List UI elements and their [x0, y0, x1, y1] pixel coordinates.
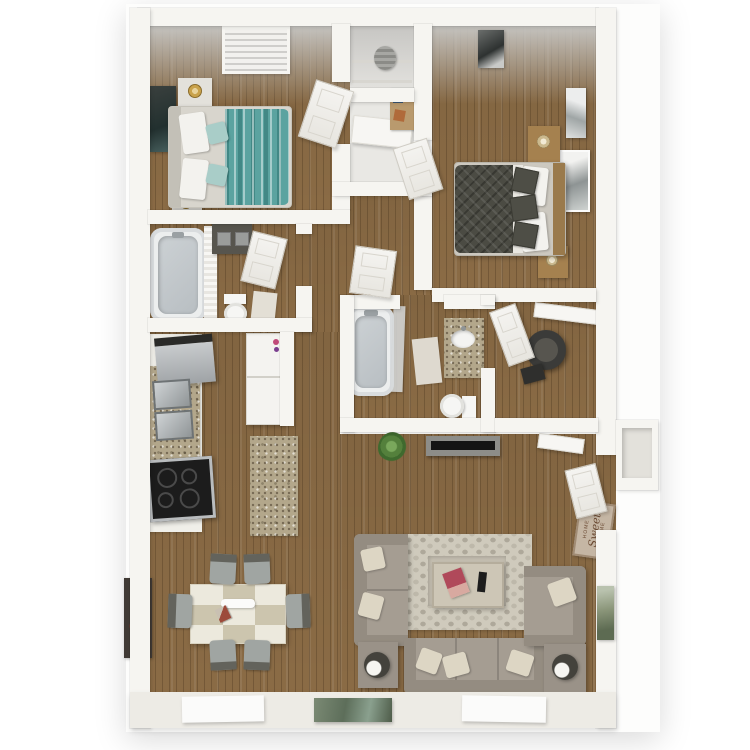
bedroom1-lamp-top [188, 84, 202, 98]
bathroom1-tub [150, 228, 206, 322]
walkin-chair-seat [534, 338, 558, 362]
wall-bedroom1-right-upper [332, 24, 350, 82]
range-burner-4 [179, 488, 200, 509]
bathroom2-tub [348, 306, 394, 396]
bed2-pillow-dark-2 [509, 194, 538, 221]
kitchen-sink-basin-2 [154, 410, 194, 442]
kitchen-sink-basin-1 [152, 379, 192, 411]
wall-right-upper [596, 8, 616, 455]
dining-table [190, 584, 286, 644]
detergent-pink [273, 339, 279, 345]
wall-bedroom1-bottom [148, 210, 350, 224]
bathroom2-sink [451, 330, 475, 348]
bathroom2-toilet-tank [462, 396, 476, 418]
wall-top [138, 8, 598, 26]
range-burner-2 [181, 468, 198, 485]
dining-chair-5 [167, 594, 192, 629]
bed2-duvet [455, 165, 517, 253]
closet-basket [374, 46, 396, 70]
bed1-duvet [225, 109, 289, 205]
step-mat-left [182, 695, 264, 722]
end-table-right-lamp [552, 654, 578, 680]
wall-bedroom1-right-lower [332, 144, 350, 210]
wall-bathroom1-right-stub [296, 224, 312, 234]
washer-dryer-stack [246, 333, 284, 425]
wall-bathroom2-left [340, 295, 354, 432]
kitchen-island [250, 436, 298, 536]
loveseat-pillow-1 [360, 546, 386, 572]
bathroom2-tub-basin [355, 316, 387, 388]
bedroom2-bed [454, 162, 566, 256]
range-burner-3 [157, 492, 174, 509]
photo-doormat [314, 698, 392, 722]
bathroom2-door [349, 245, 397, 298]
tv-screen [431, 441, 495, 450]
bathroom1-sink-1 [217, 232, 231, 246]
ceiling-vent [222, 26, 290, 74]
coffee-table-remote [477, 572, 487, 593]
bathroom1-vanity [212, 224, 252, 254]
desk-book [393, 109, 406, 122]
washer-divider [247, 376, 283, 378]
bed2-headboard [553, 163, 565, 255]
tv-console [426, 436, 500, 456]
bed1-pillow-white-1 [178, 111, 209, 154]
wall-bathroom2-bottom [340, 418, 495, 432]
end-table-left-lamp [364, 652, 390, 678]
wall-washer-nook [280, 332, 294, 426]
bathroom2-vanity [444, 318, 484, 378]
upper-closet-shelf-edge-2 [352, 80, 412, 83]
bedroom2-wall-art-upper [566, 88, 586, 138]
wall-walkin-left-stub [481, 295, 495, 305]
dining-chair-3 [209, 639, 237, 670]
wall-walkin-left [481, 368, 495, 432]
bed2-pillow-dark-1 [511, 167, 539, 195]
bathroom1-faucet [172, 232, 184, 238]
step-mat-right [462, 695, 546, 722]
dining-chair-6 [285, 594, 310, 629]
kitchen-sink-unit [148, 379, 196, 440]
bedroom2-lamp-top [537, 135, 550, 148]
kitchen-range [146, 456, 216, 522]
bathroom2-faucet [364, 310, 378, 316]
bathroom2-sink-faucet [461, 326, 466, 331]
wall-closet-right-lower [414, 182, 432, 290]
bathroom1-tub-basin [158, 236, 198, 314]
exterior-alcove [616, 420, 658, 490]
detergent-purple [274, 347, 279, 352]
bathroom2-bath-mat [412, 337, 443, 385]
bed2-pillow-dark-3 [511, 221, 539, 249]
range-burner-1 [157, 467, 178, 488]
bedroom2-topwall-art [478, 30, 504, 68]
dining-chair-4 [243, 640, 270, 671]
bathroom1-sink-2 [235, 232, 249, 246]
exterior-alcove-interior [622, 428, 652, 478]
potted-plant [378, 432, 408, 464]
coffee-table [432, 562, 504, 608]
bed1-pillow-teal-2 [205, 163, 229, 187]
dining-chair-2 [243, 554, 270, 585]
wall-walkin-bottom [495, 418, 598, 432]
bedroom1-bed [168, 106, 292, 208]
wall-left [130, 8, 150, 728]
living-wall-art-green [597, 586, 614, 640]
wall-closet-right-upper [414, 24, 432, 140]
coffee-table-magazine [442, 567, 470, 598]
dining-chair-1 [209, 553, 237, 584]
wall-closet-divider [350, 88, 414, 102]
bathroom2-toilet-bowl [440, 394, 464, 418]
bed1-pillow-white-2 [179, 158, 209, 200]
wall-bathroom1-bottom [148, 318, 312, 332]
floor-plan-scene: HOME Sweet HOME [0, 0, 750, 750]
